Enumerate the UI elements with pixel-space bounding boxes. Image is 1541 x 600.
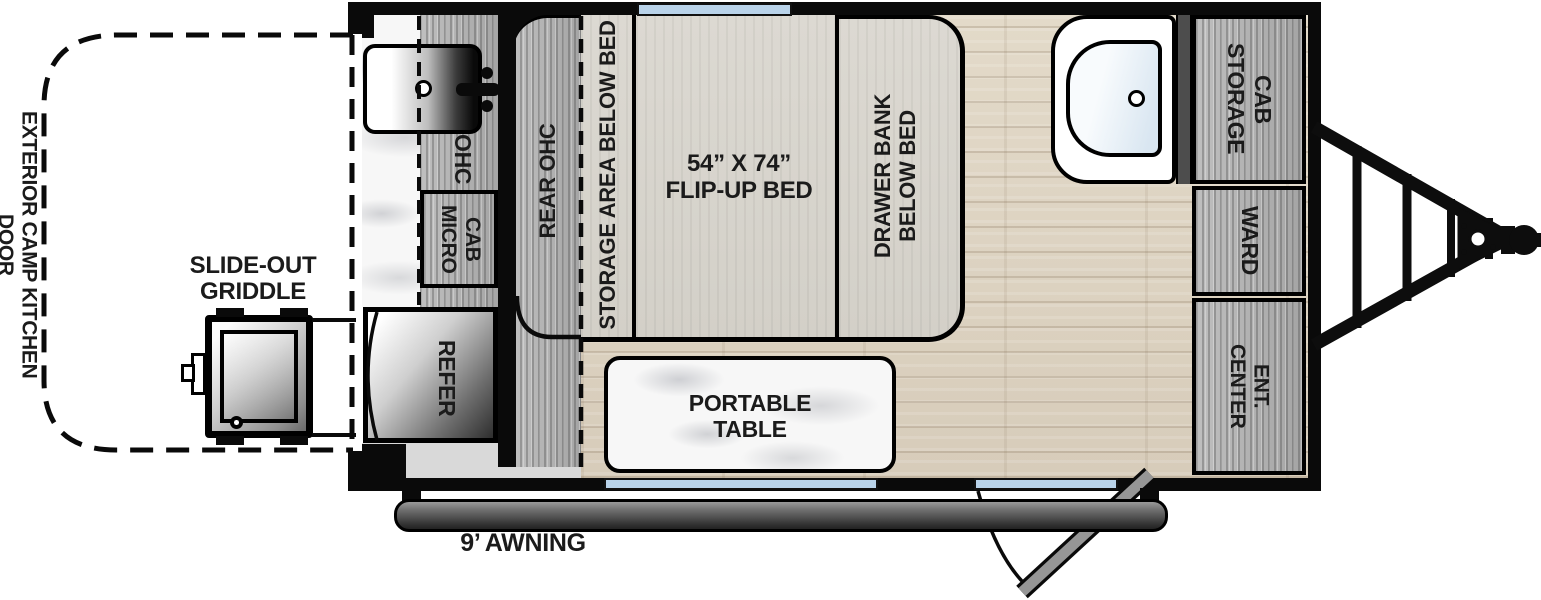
griddle-inner-panel (220, 330, 298, 423)
griddle-foot-icon (280, 436, 308, 445)
hitch-aframe (1314, 127, 1541, 345)
griddle-foot-icon (216, 308, 244, 317)
rear-ohc-label: REAR OHC (533, 81, 563, 281)
griddle-knob-icon (230, 416, 243, 429)
hitch-pin-icon (1470, 231, 1486, 247)
hitch-coupler-icon (1509, 225, 1539, 255)
drawer-bank-label: DRAWER BANK BELOW BED (870, 66, 924, 286)
trailer-wall-corner (348, 444, 406, 491)
entry-door-outline (1022, 474, 1150, 592)
storage-area-below-bed-label: STORAGE AREA BELOW BED (593, 15, 623, 335)
window (637, 3, 792, 16)
griddle-foot-icon (216, 436, 244, 445)
ent-center-label: ENT. CENTER (1231, 320, 1267, 452)
window (604, 478, 878, 490)
rear-wall-opening (347, 34, 362, 451)
hitch-coupler-icon (1501, 226, 1515, 254)
flip-up-bed-label: 54” X 74” FLIP-UP BED (639, 150, 839, 204)
exterior-camp-kitchen-door-label: EXTERIOR CAMP KITCHEN DOOR (0, 85, 34, 405)
micro-cab-label: MICRO CAB (422, 194, 498, 284)
trailer-wall-corner (348, 2, 374, 38)
ohc-label: OHC (444, 134, 480, 184)
awning-bar (394, 499, 1168, 532)
griddle-foot-icon (280, 308, 308, 317)
griddle-handle-icon (181, 364, 195, 382)
floorplan-canvas: EXTERIOR CAMP KITCHEN DOOR SLIDE-OUT GRI… (0, 0, 1541, 600)
portable-table-label: PORTABLE TABLE (650, 390, 850, 442)
slide-out-griddle (205, 315, 313, 438)
storage-cab-label: STORAGE CAB (1212, 26, 1286, 172)
ward-label: WARD (1231, 212, 1267, 270)
slide-out-griddle-label: SLIDE-OUT GRIDDLE (153, 253, 353, 305)
hitch-tip (1458, 207, 1505, 270)
refer-label: REFER (428, 340, 464, 416)
entry-door (1022, 474, 1150, 592)
awning-label: 9’ AWNING (423, 529, 623, 557)
entry-door-window (974, 478, 1118, 490)
